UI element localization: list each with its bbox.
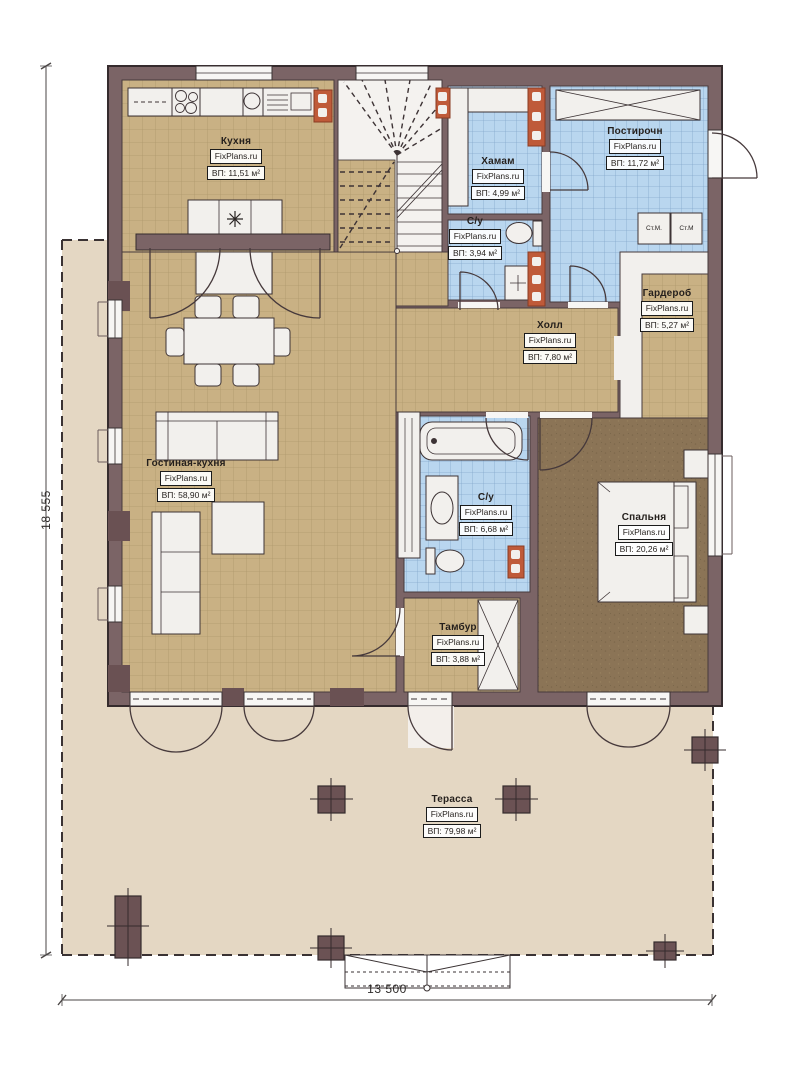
tambur-closet [478, 600, 518, 690]
wc1-door-opening [458, 302, 500, 308]
laundry-door-opening [568, 302, 608, 308]
floor-plan-canvas: Кухня FixPlans.ru ВП: 11,51 м² Хамам Fix… [0, 0, 792, 1080]
sofa-corner [152, 512, 200, 634]
chair [195, 364, 221, 386]
chair [233, 364, 259, 386]
bedroom-terrace-door-opening [587, 692, 670, 706]
sofa-straight [156, 412, 278, 460]
tv-unit [398, 412, 420, 558]
coffee-table [212, 502, 264, 554]
partition-wall [136, 234, 330, 250]
dimension-label-horizontal: 13 500 [327, 982, 447, 996]
floor-plan-drawing [0, 0, 792, 1080]
door-right-opening [708, 130, 722, 178]
laundry-cabinet [556, 90, 700, 120]
bedroom-door-opening [540, 412, 592, 418]
dining-table [184, 318, 274, 364]
hamam-door-opening [542, 152, 550, 192]
toilet-icon [426, 548, 464, 574]
washbasin-icon [426, 476, 458, 540]
washing-machine [671, 213, 702, 244]
water-heater-icon [505, 266, 531, 300]
kitchen-counter [128, 88, 318, 116]
wardrobe-door-opening [614, 336, 622, 380]
chair [195, 296, 221, 318]
hall-floor [380, 308, 618, 412]
bed-icon [598, 482, 696, 602]
wc2-door-opening [486, 412, 528, 418]
chair [272, 328, 290, 356]
washing-machine [638, 213, 670, 244]
chair [233, 296, 259, 318]
entry-porch [408, 706, 454, 748]
nightstand [684, 606, 708, 634]
chair [166, 328, 184, 356]
wardrobe-floor [642, 274, 708, 420]
nightstand [684, 450, 708, 478]
dimension-label-vertical: 18 555 [39, 480, 53, 540]
